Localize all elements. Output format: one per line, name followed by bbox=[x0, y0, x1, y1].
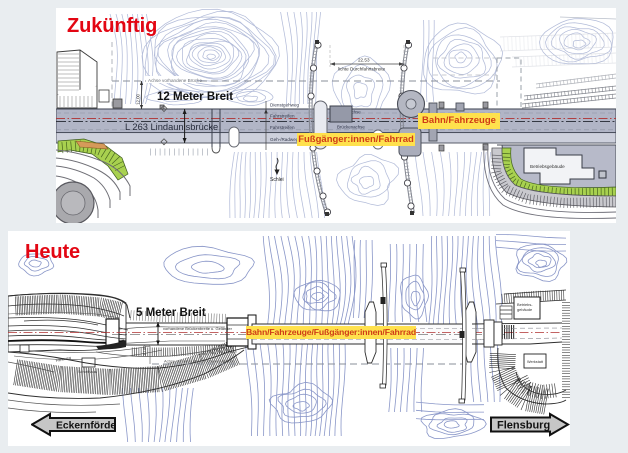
svg-text:12.00: 12.00 bbox=[136, 93, 141, 105]
svg-text:22.53: 22.53 bbox=[358, 58, 370, 63]
svg-text:Achse vorhandene Brücke: Achse vorhandene Brücke bbox=[148, 78, 202, 83]
svg-text:Eckernförde: Eckernförde bbox=[56, 421, 116, 432]
svg-text:Flensburg: Flensburg bbox=[497, 419, 550, 431]
svg-text:Schlei: Schlei bbox=[270, 177, 284, 183]
svg-text:Betriebsgebäude: Betriebsgebäude bbox=[530, 164, 565, 169]
svg-text:L 263 Lindaunisbrücke: L 263 Lindaunisbrücke bbox=[125, 122, 218, 132]
svg-text:12 Meter Breit: 12 Meter Breit bbox=[157, 91, 233, 103]
svg-text:10.00: 10.00 bbox=[142, 345, 147, 356]
svg-text:vorhandene Brückenbreite u. Ge: vorhandene Brückenbreite u. Geländer bbox=[163, 326, 233, 331]
svg-text:Achse der alten abgebrochenen: Achse der alten abgebrochenen Brücke bbox=[164, 359, 235, 364]
svg-text:5 Meter Breit: 5 Meter Breit bbox=[136, 307, 206, 319]
svg-text:Dienstgehweg: Dienstgehweg bbox=[270, 102, 300, 107]
svg-text:gebäude: gebäude bbox=[517, 307, 532, 312]
svg-text:Geh-/Radweg: Geh-/Radweg bbox=[270, 137, 299, 142]
svg-text:Werkstatt: Werkstatt bbox=[527, 360, 544, 364]
svg-text:Fahrstreifen: Fahrstreifen bbox=[270, 125, 295, 130]
svg-text:Fahrstreifen: Fahrstreifen bbox=[270, 113, 295, 118]
svg-text:Schleihaus: Schleihaus bbox=[78, 370, 97, 374]
svg-text:lichte Durchfahrtsbreite: lichte Durchfahrtsbreite bbox=[338, 67, 386, 72]
svg-text:Brückenachse: Brückenachse bbox=[337, 125, 365, 130]
